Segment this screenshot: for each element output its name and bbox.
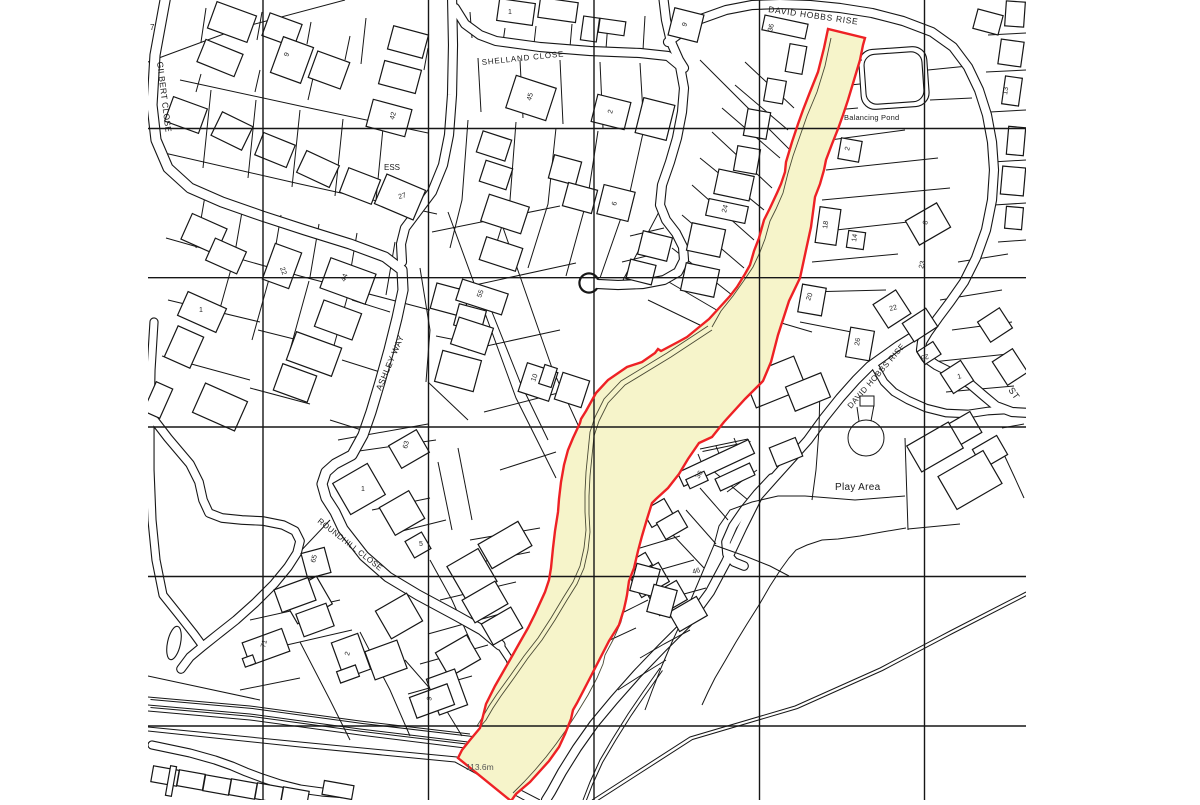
svg-text:Play Area: Play Area	[835, 482, 881, 493]
svg-text:1: 1	[508, 9, 512, 16]
svg-text:1: 1	[199, 307, 203, 314]
svg-text:113.6m: 113.6m	[466, 762, 494, 772]
svg-text:13: 13	[1002, 86, 1010, 95]
svg-text:14: 14	[851, 233, 859, 242]
svg-text:ESS: ESS	[384, 163, 400, 172]
svg-text:26: 26	[854, 337, 862, 346]
svg-text:Balancing Pond: Balancing Pond	[844, 113, 899, 122]
svg-text:7: 7	[150, 23, 155, 32]
svg-text:18: 18	[822, 220, 830, 229]
svg-text:1: 1	[361, 486, 365, 493]
svg-text:5: 5	[419, 541, 423, 548]
